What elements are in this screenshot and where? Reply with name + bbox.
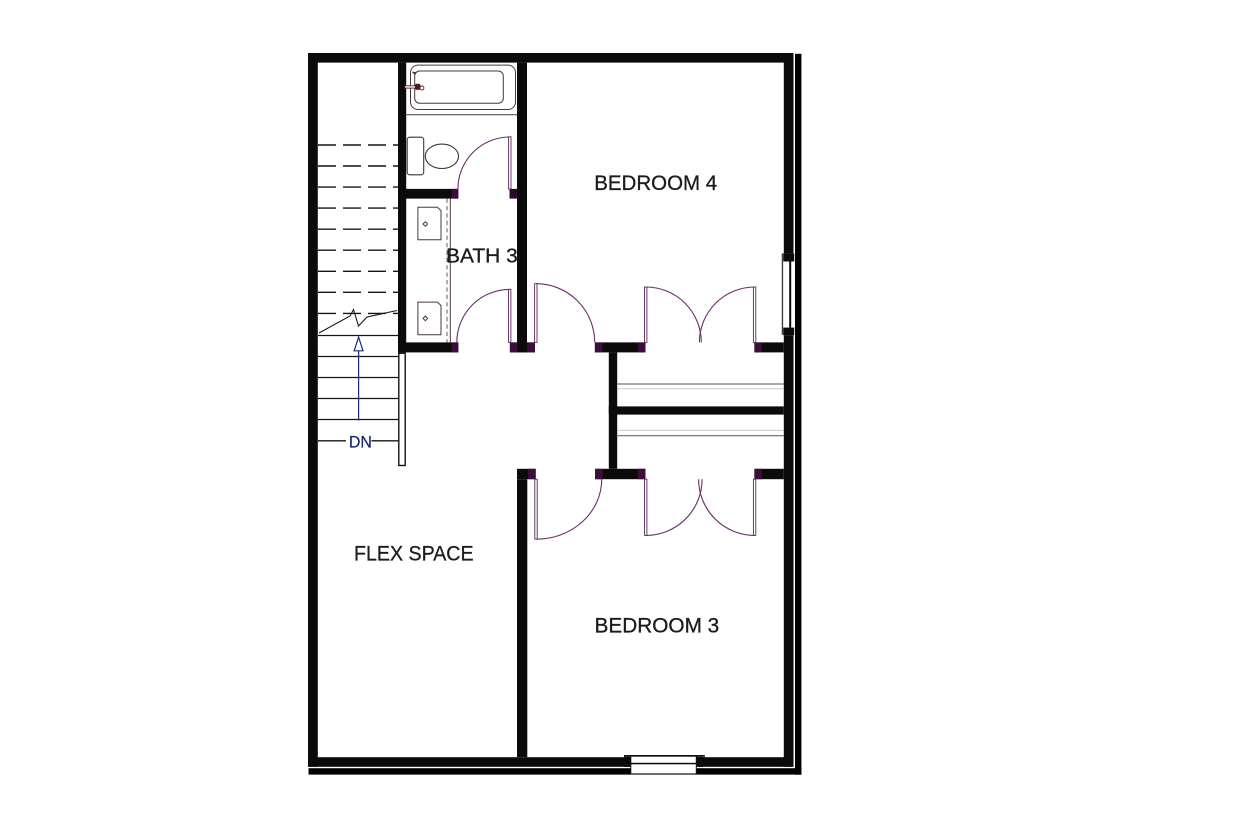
svg-text:BATH 3: BATH 3	[446, 245, 518, 267]
svg-text:FLEX SPACE: FLEX SPACE	[354, 543, 474, 566]
svg-text:BEDROOM 4: BEDROOM 4	[594, 172, 717, 195]
svg-text:BEDROOM 3: BEDROOM 3	[595, 615, 720, 638]
svg-text:DN: DN	[349, 433, 372, 452]
